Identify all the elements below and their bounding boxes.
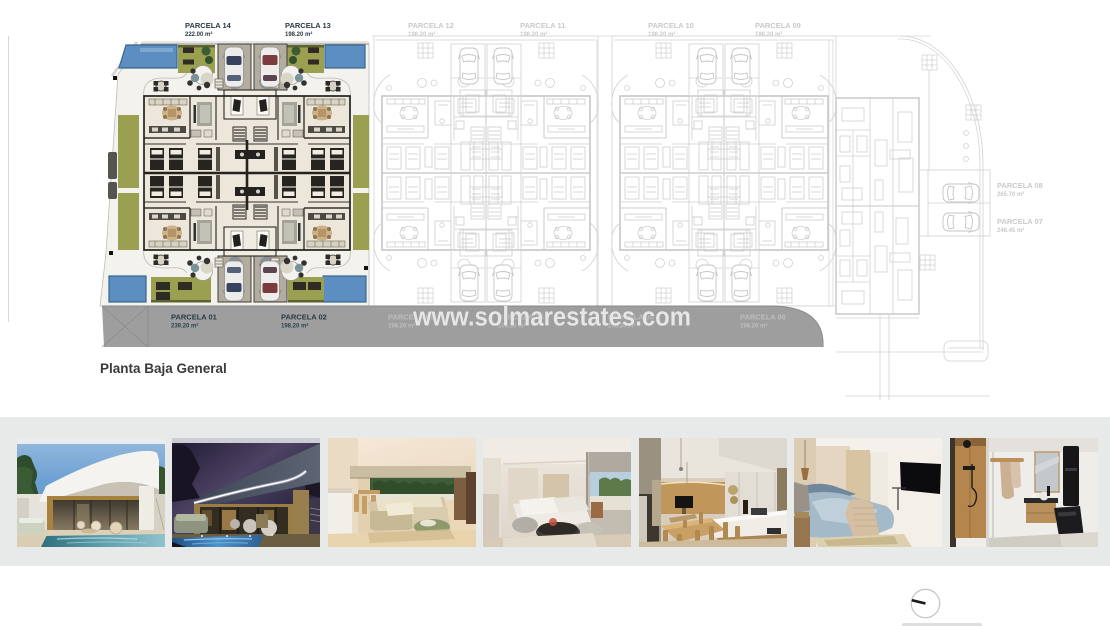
svg-text:239.20 m²: 239.20 m²	[171, 323, 198, 330]
svg-text:198.20 m²: 198.20 m²	[285, 31, 312, 38]
svg-text:PARCELA 11: PARCELA 11	[520, 21, 565, 30]
svg-text:198.20 m²: 198.20 m²	[648, 31, 675, 38]
svg-text:PARCELA 06: PARCELA 06	[740, 313, 786, 322]
svg-text:PARCELA 12: PARCELA 12	[408, 21, 454, 30]
svg-text:PARCELA 02: PARCELA 02	[281, 313, 327, 322]
svg-text:198.20 m²: 198.20 m²	[388, 323, 415, 330]
svg-text:PARCELA 14: PARCELA 14	[185, 21, 232, 30]
svg-text:198.20 m²: 198.20 m²	[520, 31, 547, 38]
svg-text:PARCELA 13: PARCELA 13	[285, 21, 331, 30]
svg-text:198.20 m²: 198.20 m²	[740, 323, 767, 330]
svg-text:198.20 m²: 198.20 m²	[281, 323, 308, 330]
svg-text:www.solmarestates.com: www.solmarestates.com	[412, 302, 691, 332]
svg-text:PARCELA 08: PARCELA 08	[997, 181, 1043, 190]
svg-text:PARCELA 10: PARCELA 10	[648, 21, 694, 30]
svg-text:198.20 m²: 198.20 m²	[408, 31, 435, 38]
svg-text:246.45 m²: 246.45 m²	[997, 227, 1024, 234]
svg-text:PARCELA 09: PARCELA 09	[755, 21, 801, 30]
svg-text:PARCELA 07: PARCELA 07	[997, 217, 1043, 226]
svg-text:265.70 m²: 265.70 m²	[997, 191, 1024, 198]
svg-text:PARCELA 01: PARCELA 01	[171, 313, 217, 322]
svg-text:198.20 m²: 198.20 m²	[755, 31, 782, 38]
svg-text:222.00 m²: 222.00 m²	[185, 31, 212, 38]
